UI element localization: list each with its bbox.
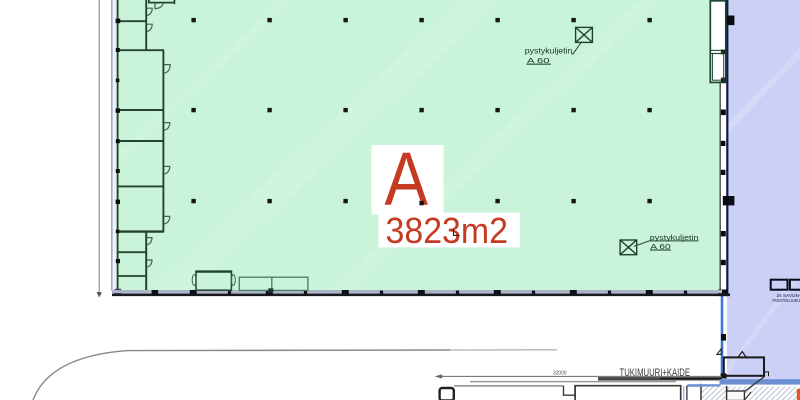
svg-text:POISTOLUUKUT: POISTOLUUKUT [773, 298, 800, 303]
svg-text:pystykuljetin: pystykuljetin [650, 233, 699, 242]
svg-text:A: A [385, 136, 429, 220]
svg-text:A 60: A 60 [650, 242, 670, 251]
svg-text:A 60: A 60 [527, 56, 550, 65]
svg-text:3823m2: 3823m2 [386, 210, 509, 251]
svg-text:pystykuljetin: pystykuljetin [525, 47, 573, 56]
svg-text:32000: 32000 [553, 371, 567, 377]
